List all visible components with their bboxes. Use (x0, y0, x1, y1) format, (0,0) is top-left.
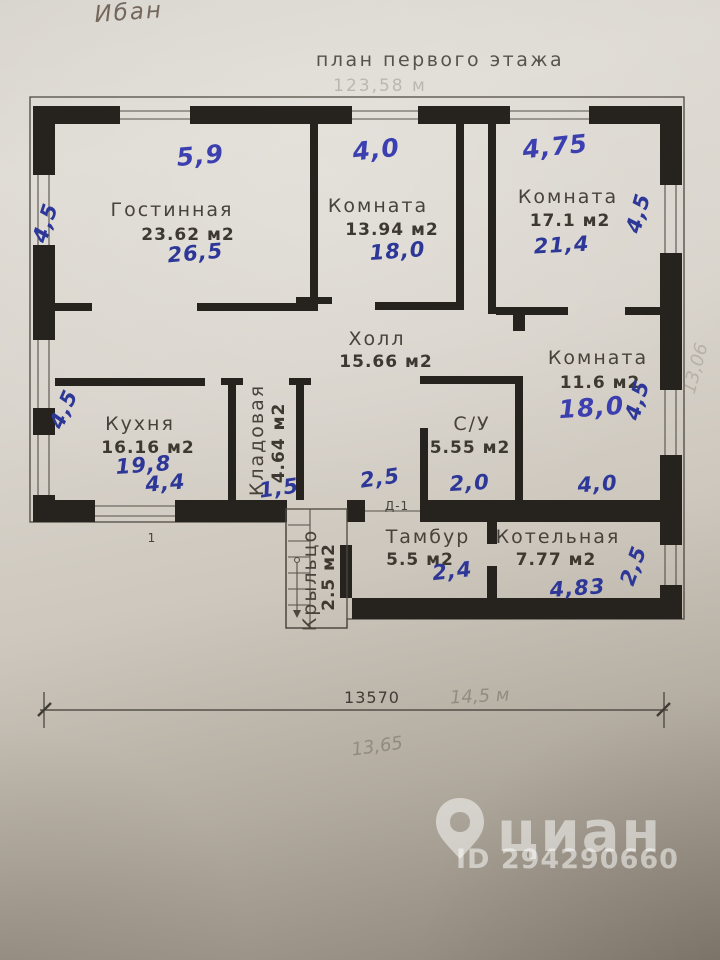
pen-scribble: Ибан (94, 0, 164, 28)
living-hand-area: 26,5 (167, 239, 225, 268)
bedroom-mid-hand-area: 18,0 (369, 237, 426, 265)
bathroom-hand-area: 2,0 (449, 470, 490, 496)
boiler-name: Котельная (496, 526, 621, 548)
kitchen-name: Кухня (105, 413, 175, 435)
total-area-faint: 123,58 м (333, 76, 427, 96)
porch-name: Крыльцо (299, 529, 321, 631)
boiler-dim-right: 2,5 (615, 543, 651, 589)
bedroom-mid-dim-top: 4,0 (350, 133, 401, 167)
pantry-dim-bottom: 1,5 (257, 473, 300, 502)
living-room-name: Гостинная (111, 199, 234, 221)
bathroom-area: 5.55 м2 (430, 438, 511, 458)
dimension-value: 13570 (344, 688, 400, 707)
boiler-area: 7.77 м2 (516, 550, 597, 570)
bedroom-right-name: Комната (518, 186, 618, 208)
plan-title: план первого этажа (316, 49, 564, 71)
bedroom-mid-area: 13.94 м2 (345, 220, 438, 240)
bedroom-right-hand-area: 21,4 (533, 232, 590, 259)
porch-area: 2.5 м2 (319, 543, 339, 611)
kitchen-dim-bottom: 4,4 (143, 469, 186, 496)
bedroom-small-name: Комната (548, 347, 648, 369)
tambour-dim-bottom: 2,4 (431, 557, 473, 585)
living-dim-top: 5,9 (175, 139, 225, 172)
tambour-name: Тамбур (385, 526, 471, 548)
wall-mark-label: 1 (148, 531, 157, 545)
bedroom-small-hand-area: 18,0 (558, 391, 626, 425)
boiler-dim-bottom: 4,83 (548, 574, 606, 602)
hall-area: 15.66 м2 (339, 352, 432, 372)
bathroom-dim-left: 2,5 (358, 463, 401, 492)
bedroom-right-dim-top: 4,75 (520, 129, 589, 165)
pantry-area: 4.64 м2 (269, 403, 289, 484)
door-label: Д-1 (385, 499, 409, 513)
living-dim-left: 4,5 (27, 200, 63, 247)
hall-name: Холл (349, 328, 406, 350)
watermark-id: ID 294290660 (456, 844, 679, 875)
dimension-line: 13570 14,5 м 13,65 (38, 684, 670, 760)
pencil-note: 14,5 м (450, 684, 510, 708)
pencil-note-2: 13,65 (350, 733, 404, 761)
bedroom-right-area: 17.1 м2 (530, 211, 611, 231)
bedroom-right-dim-right: 4,5 (621, 190, 655, 236)
bedroom-mid-name: Комната (328, 195, 428, 217)
watermark: циан ID 294290660 (436, 798, 679, 875)
bathroom-name: С/У (453, 413, 490, 435)
floor-plan-scan: Ибан план первого этажа 123,58 м (0, 0, 720, 960)
bedroom-small-dim-bottom: 4,0 (576, 471, 619, 498)
